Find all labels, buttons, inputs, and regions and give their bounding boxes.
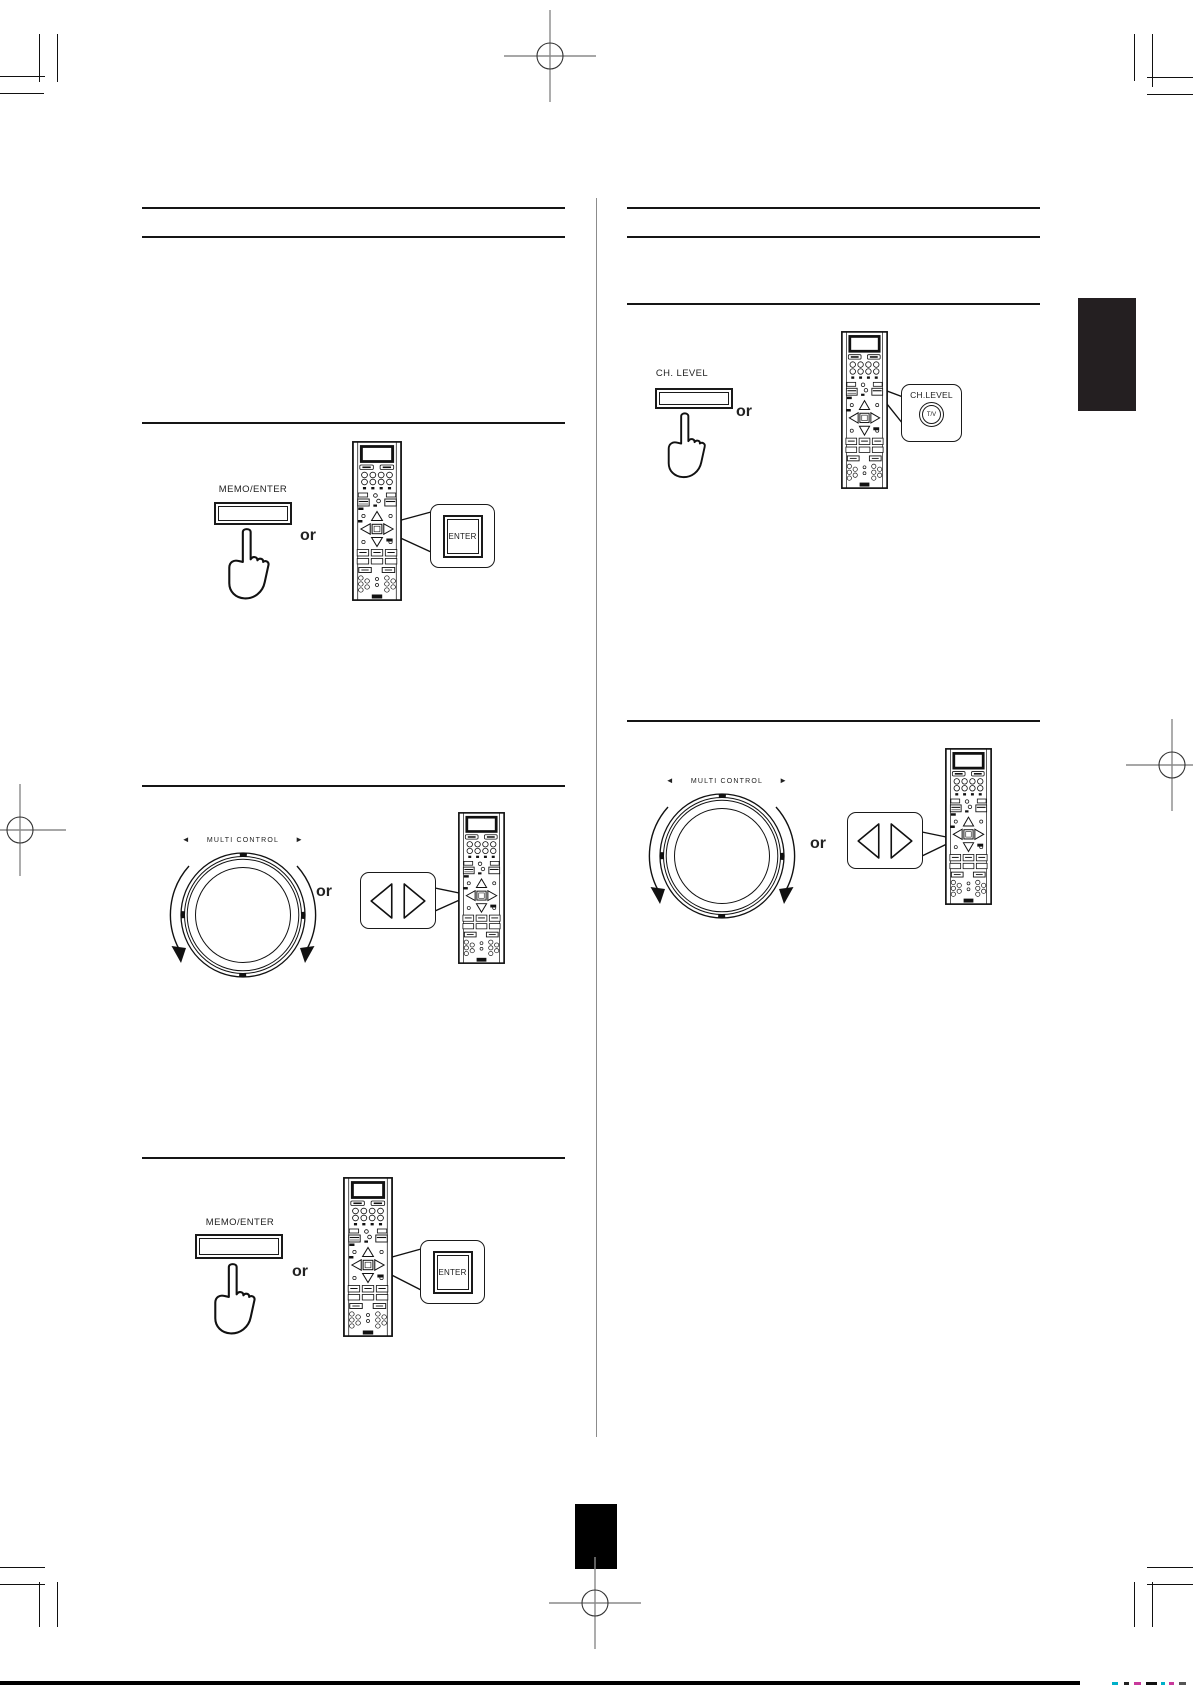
- rule-left-4: [142, 785, 565, 787]
- rule-right-1: [627, 207, 1040, 209]
- pointing-hand-icon-3: [662, 411, 708, 479]
- left-right-arrows-callout-1: [360, 872, 436, 929]
- or-label-1: or: [300, 528, 316, 544]
- enter-key-label-2: ENTER: [438, 1268, 466, 1277]
- enter-key-1: ENTER: [443, 515, 483, 558]
- manual-page: MEMO/ENTER or ENTER ◄ MULTI CONTROL ► or…: [0, 0, 1193, 1685]
- remote-control-illustration-5: [945, 748, 992, 905]
- ch-level-key: T/V: [919, 402, 944, 427]
- registration-mark-left-icon: [0, 782, 68, 878]
- left-right-arrows-callout-2: [847, 812, 923, 869]
- remote-control-illustration-3: [343, 1177, 393, 1337]
- rule-left-3: [142, 422, 565, 424]
- rule-right-4: [627, 720, 1040, 722]
- ch-level-label: CH. LEVEL: [640, 368, 724, 379]
- remote-control-illustration-2: [458, 812, 505, 964]
- rule-left-2: [142, 236, 565, 238]
- multi-control-dial-illustration-1: [155, 827, 331, 1003]
- remote-control-illustration-1: [352, 441, 402, 601]
- memo-enter-button-illustration-1: [214, 502, 292, 525]
- or-label-4: or: [736, 404, 752, 420]
- left-right-arrow-keys-icon-1: [363, 876, 433, 926]
- or-label-3: or: [292, 1264, 308, 1280]
- rule-left-1: [142, 207, 565, 209]
- bottom-edge-strip: [0, 1681, 1080, 1685]
- registration-mark-bottom-icon: [547, 1555, 643, 1651]
- memo-enter-button-illustration-2: [195, 1234, 283, 1259]
- pointing-hand-icon-1: [222, 527, 272, 600]
- memo-enter-label-1: MEMO/ENTER: [200, 484, 306, 495]
- column-divider: [596, 198, 597, 1437]
- ch-level-key-label: T/V: [927, 412, 936, 418]
- enter-key-callout-1: ENTER: [430, 504, 495, 568]
- rule-right-3: [627, 303, 1040, 305]
- registration-mark-top-icon: [502, 8, 598, 104]
- pointing-hand-icon-2: [208, 1262, 258, 1335]
- rule-right-2: [627, 236, 1040, 238]
- section-tab: [1078, 298, 1136, 411]
- multi-control-dial-illustration-2: [634, 768, 810, 944]
- ch-level-callout: CH.LEVEL T/V: [901, 384, 962, 442]
- left-right-arrow-keys-icon-2: [850, 816, 920, 866]
- remote-control-illustration-4: [841, 331, 888, 489]
- enter-key-label-1: ENTER: [448, 532, 476, 541]
- enter-key-2: ENTER: [433, 1251, 473, 1294]
- rule-left-5: [142, 1157, 565, 1159]
- or-label-5: or: [810, 836, 826, 852]
- ch-level-button-illustration: [655, 388, 733, 409]
- enter-key-callout-2: ENTER: [420, 1240, 485, 1304]
- registration-mark-right-icon: [1124, 717, 1193, 813]
- ch-level-callout-label: CH.LEVEL: [910, 390, 953, 400]
- memo-enter-label-2: MEMO/ENTER: [188, 1217, 292, 1228]
